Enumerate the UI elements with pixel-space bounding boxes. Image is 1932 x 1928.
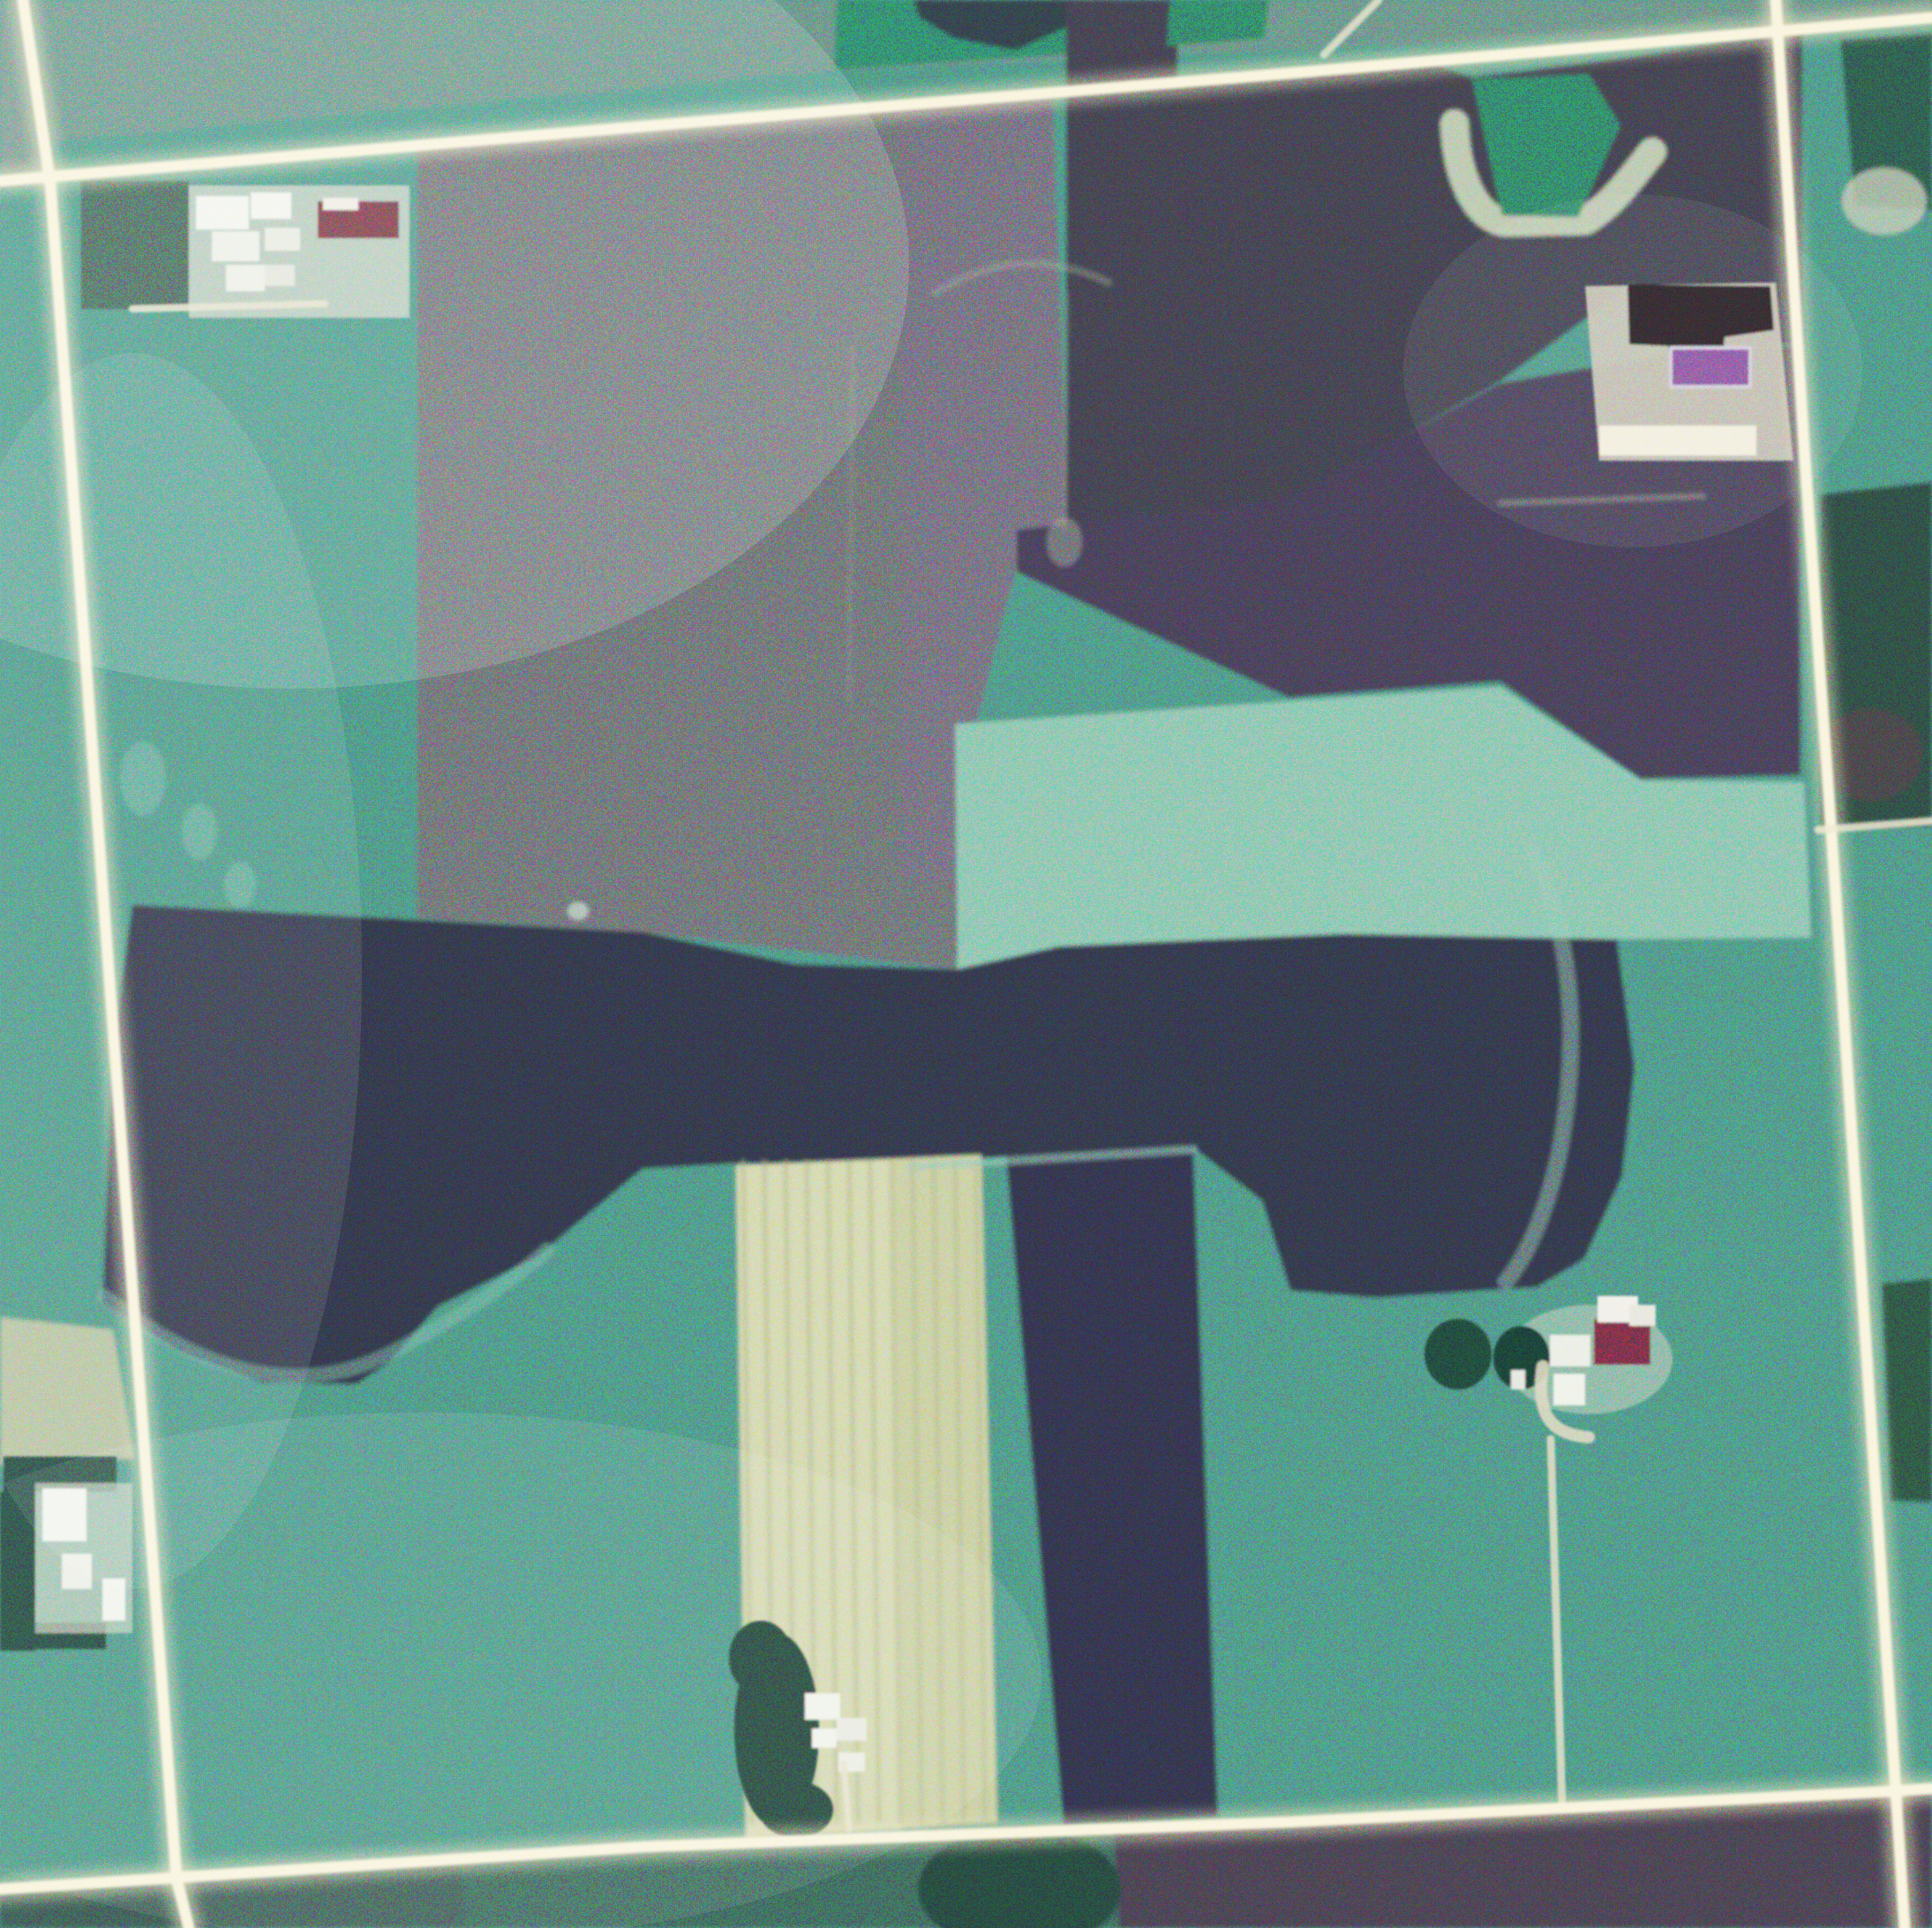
noise-grain [0,0,1932,1928]
noise-layer [0,0,1932,1928]
aerial-photo-svg [0,0,1932,1928]
aerial-photo-canvas [0,0,1932,1928]
